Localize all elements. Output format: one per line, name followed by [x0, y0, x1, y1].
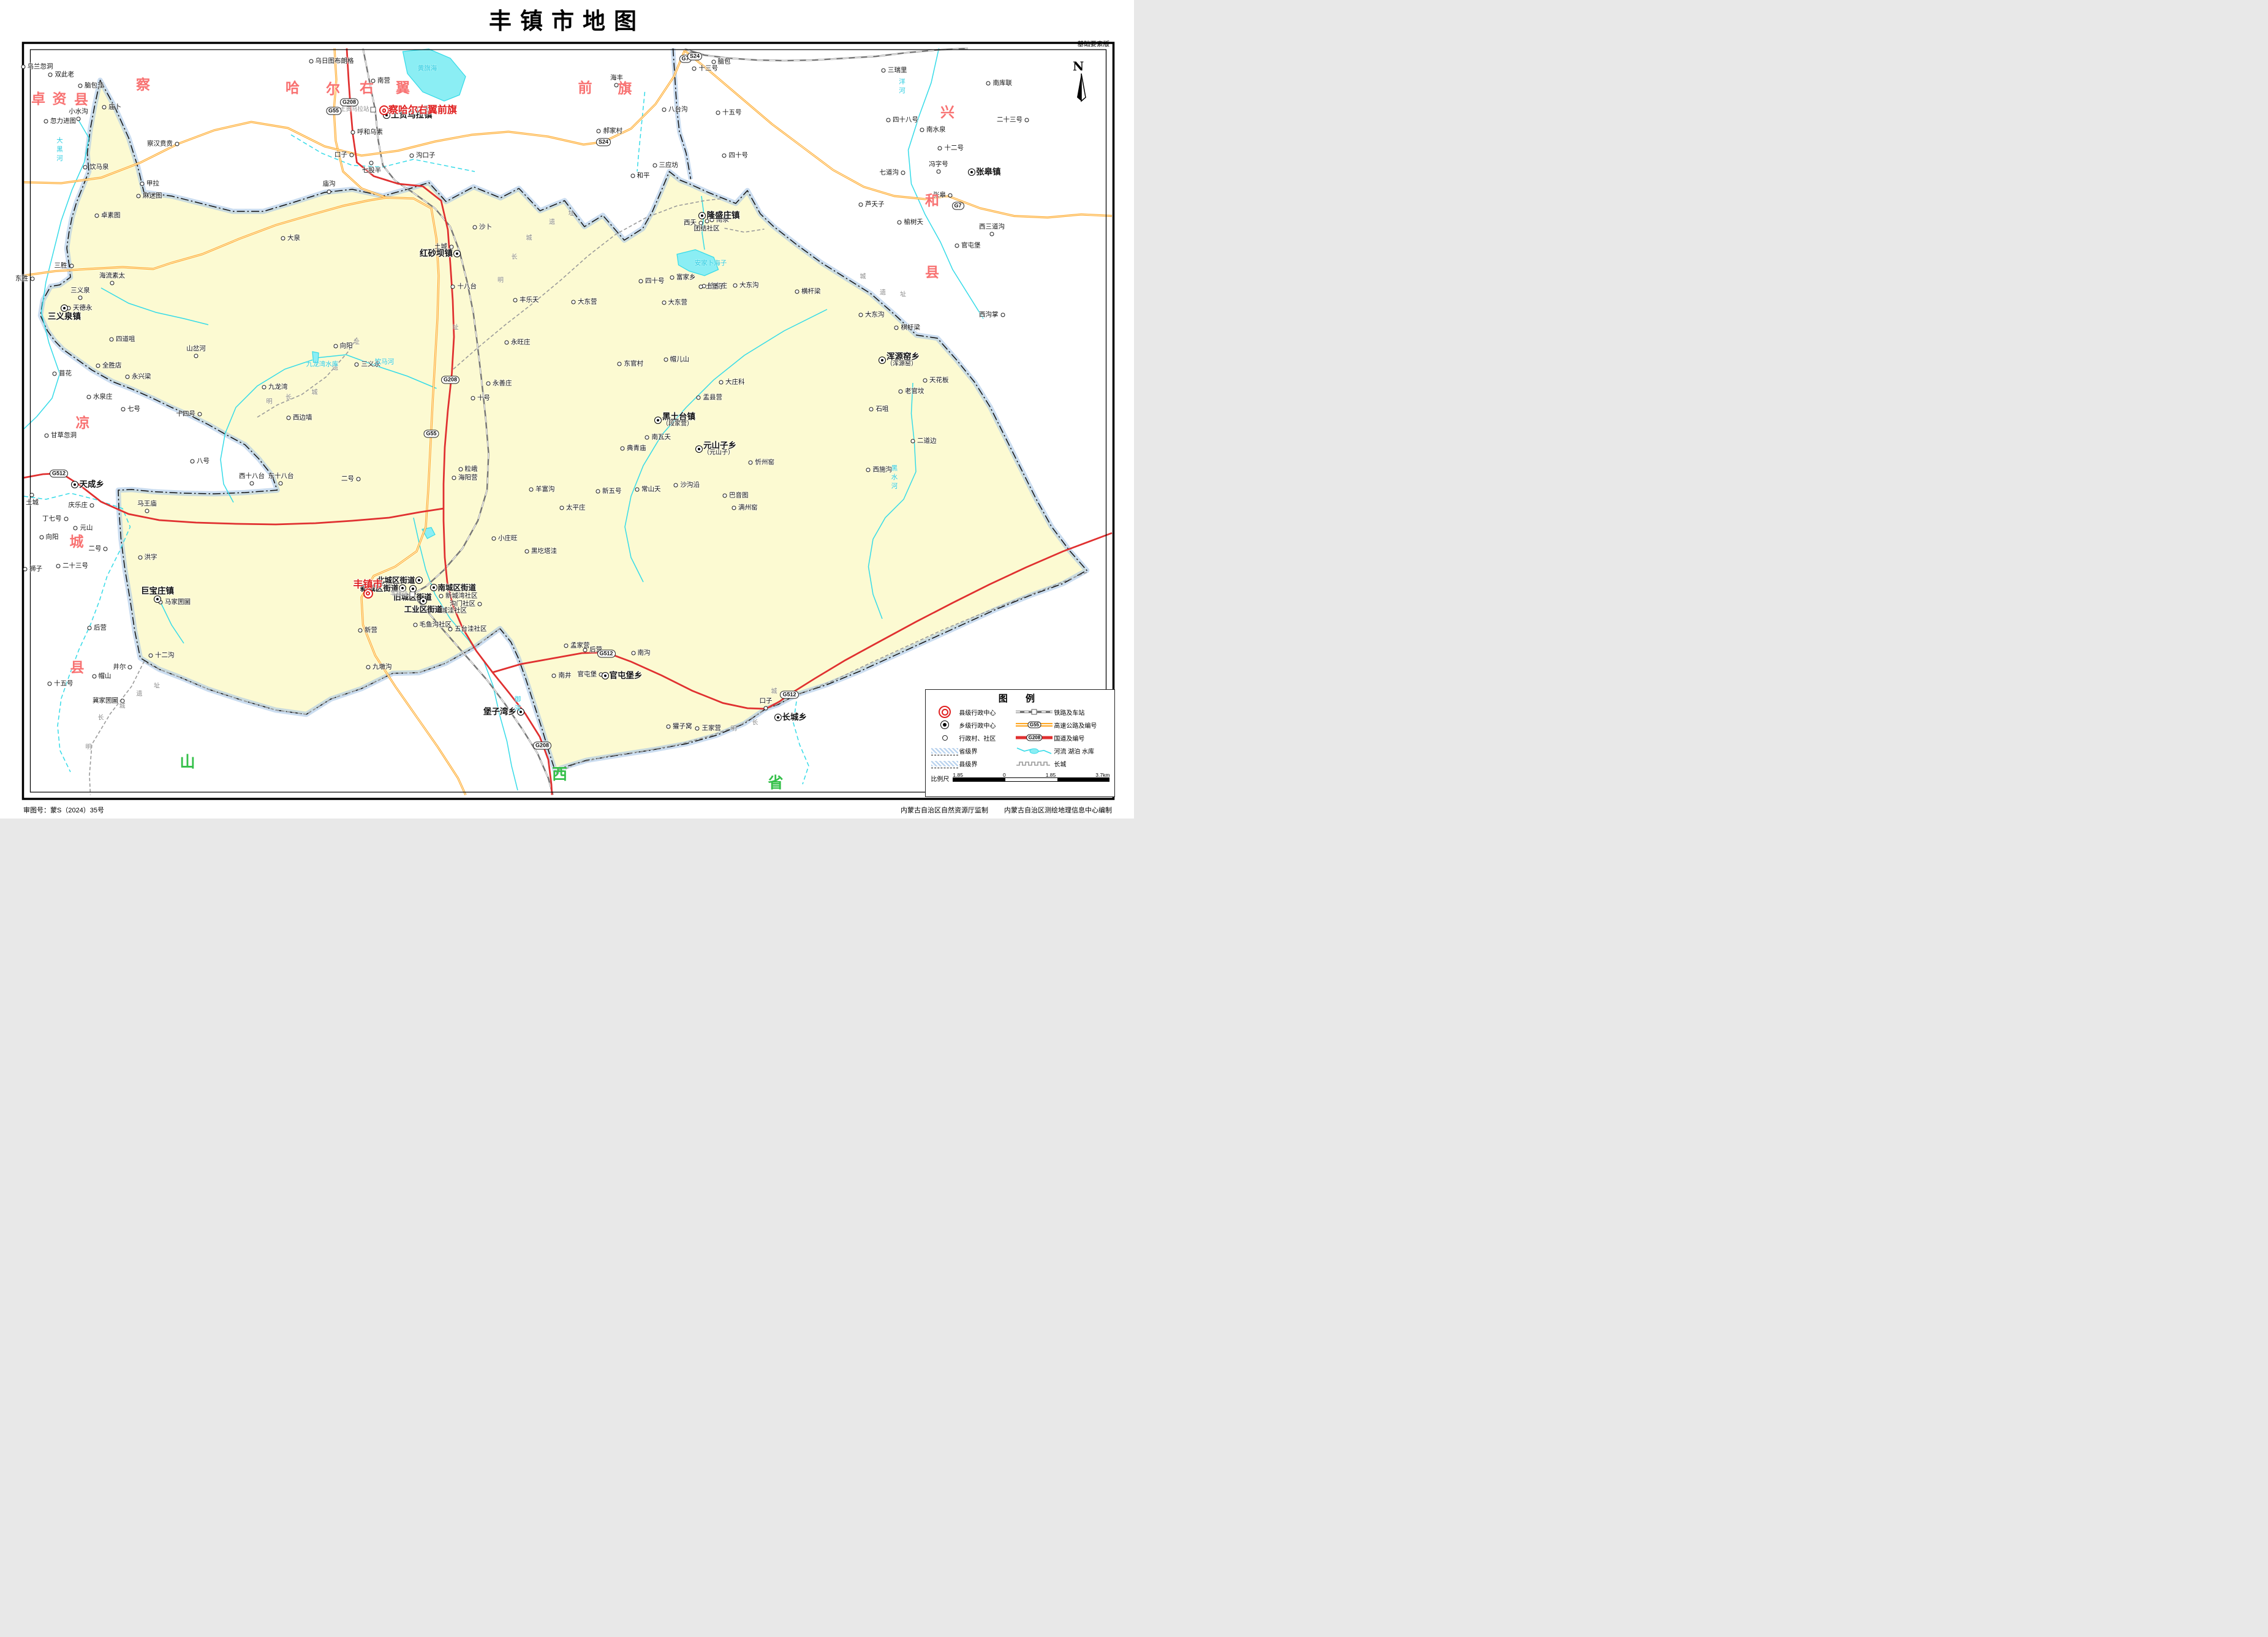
great-wall-label-char: 明: [497, 275, 504, 284]
county-seat-label-text: 丰镇市: [353, 580, 382, 590]
neighbor-region-char: 和: [925, 189, 939, 210]
village-label-marker: [639, 279, 643, 283]
road-badge: S24: [687, 52, 702, 60]
village-label-text: 三瑞里: [888, 67, 907, 74]
neighbor-region-char: 资: [52, 87, 66, 108]
village-label-marker: [513, 298, 518, 303]
great-wall-label-char: 城: [860, 271, 866, 281]
great-wall-label-char: 址: [452, 322, 458, 331]
street-office-label-text: 工业区街道: [404, 605, 443, 613]
credits: 内蒙古自治区自然资源厅监制 内蒙古自治区测绘地理信息中心编制: [901, 805, 1112, 815]
town-label-text: 堡子湾乡: [483, 707, 516, 716]
village-label-text: 典青庙: [627, 445, 646, 452]
village-label-text: 永善庄: [493, 380, 512, 387]
village-label-text: 小水沟: [69, 108, 88, 115]
village-label-marker: [662, 107, 667, 112]
village-label-text: 十二号: [944, 145, 964, 152]
village-label-text: 双此老: [55, 72, 74, 78]
great-wall-label-char: 遗: [880, 287, 886, 297]
village-label-marker: [140, 181, 145, 186]
village-label-text: 郝家村: [603, 127, 622, 134]
village-label-text: 向阳: [340, 342, 353, 349]
village-label-marker: [1000, 312, 1005, 317]
road-badge: G7: [951, 202, 964, 210]
village-label-marker: [989, 232, 994, 236]
village-label-text: 二道边: [917, 437, 937, 444]
village-label-text: 盂县营: [703, 394, 722, 401]
village-label-marker: [571, 300, 575, 304]
great-wall-label-char: 址: [154, 681, 160, 690]
village-label-text: 冯字号: [929, 161, 948, 168]
town-seat-icon: [940, 720, 949, 729]
village-label-text: 口子: [335, 151, 347, 158]
village-label-text: 羊富沟: [535, 486, 555, 493]
village-label-marker: [448, 627, 452, 631]
water-label: 安家卜海子: [695, 259, 727, 268]
village-label-marker: [920, 127, 924, 132]
village-label-marker: [355, 363, 359, 367]
village-label-marker: [722, 494, 727, 498]
village-label-marker: [938, 146, 942, 151]
village-label-text: 四十号: [728, 152, 748, 159]
village-label-text: 小庄旺: [498, 535, 518, 542]
neighbor-region-char: 县: [925, 260, 939, 281]
village-label-marker: [948, 193, 953, 197]
village-label-text: 永旺庄: [511, 339, 531, 346]
village-label-marker: [583, 648, 588, 652]
village-label-text: 石咀: [875, 406, 888, 413]
village-label-marker: [44, 119, 48, 123]
village-label-marker: [138, 556, 142, 560]
village-label-text: 粒峨: [465, 466, 478, 472]
neighbor-region-char: 县: [70, 656, 84, 676]
village-label-text: 四道咀: [116, 336, 135, 342]
village-label-marker: [92, 675, 96, 679]
village-label-marker: [47, 682, 51, 686]
village-label-marker: [76, 117, 80, 121]
neighbor-region-char: 哈: [285, 76, 300, 97]
village-label-marker: [366, 665, 371, 670]
village-label-marker: [486, 381, 491, 385]
village-label-marker: [630, 174, 635, 178]
village-label-marker: [197, 412, 202, 417]
village-label-text: 巴音图: [729, 493, 749, 499]
village-label-text: 帽儿山: [670, 356, 690, 363]
great-wall-label-char: 城: [526, 233, 532, 242]
village-label-text: 庙沟: [322, 181, 335, 187]
village-label-text: 十四号: [176, 410, 195, 417]
village-label-marker: [88, 626, 92, 630]
village-label-marker: [472, 225, 477, 229]
town-label-marker: [602, 672, 609, 679]
village-label-text: 大东营: [578, 298, 597, 305]
village-label-text: 东官村: [624, 360, 643, 367]
village-label-text: 马家圐圙: [165, 599, 191, 605]
road-badge: G55: [423, 429, 439, 437]
county-seat-icon: [939, 706, 951, 718]
village-label-marker: [674, 483, 678, 487]
village-label-text: 南瓦夭: [651, 434, 671, 440]
village-label-text: 毛鱼沟社区: [420, 621, 452, 628]
compass: N: [1073, 59, 1084, 74]
village-label-marker: [309, 59, 313, 64]
village-label-text: 井尔: [113, 663, 126, 670]
village-label-text: 卓素图: [101, 212, 121, 219]
village-label-text: 天德永: [73, 304, 93, 311]
village-label-marker: [413, 622, 417, 627]
neighbor-region-char: 城: [69, 530, 83, 551]
water-label: 洋河: [898, 78, 907, 96]
legend-row: 乡级行政中心 G55 高速公路及编号: [931, 719, 1109, 732]
village-label-text: 二号: [341, 475, 354, 482]
village-label-marker: [175, 142, 179, 146]
town-label-text: 三义泉镇: [48, 312, 81, 321]
village-label-text: 獾子窝: [673, 723, 692, 730]
village-label-text: 三胜: [55, 262, 67, 269]
great-wall-label-char: 明: [266, 396, 273, 405]
village-label-marker: [458, 467, 463, 471]
station-label-text: 土贵乌拉站: [340, 107, 369, 113]
village-label-marker: [631, 651, 635, 655]
village-label-text: 丰乐夭: [520, 297, 539, 303]
village-label-marker: [560, 506, 564, 510]
water-label: 大黑河: [55, 137, 64, 164]
station-label-marker: [409, 592, 415, 597]
village-label-text: 满州窑: [738, 504, 758, 511]
village-label-marker: [882, 69, 886, 73]
water-label: 黑水河: [890, 464, 899, 491]
village-label-marker: [30, 277, 34, 281]
province-name-char: 省: [768, 771, 783, 793]
village-label-text: 沟口子: [416, 152, 436, 159]
great-wall-label-char: 长: [752, 717, 758, 727]
town-label-text: 黑土台镇（段家营）: [662, 412, 695, 428]
village-label-text: 狮子: [29, 565, 42, 572]
station-label-text: 丰镇站: [390, 591, 408, 597]
village-label-text: 饮马泉: [89, 164, 109, 170]
village-label-text: 新五号: [602, 488, 622, 495]
village-label-marker: [733, 283, 738, 287]
town-label-text: 官屯堡乡: [610, 671, 643, 680]
producer-credit: 内蒙古自治区测绘地理信息中心编制: [1004, 805, 1112, 815]
village-label-text: 庙卜: [108, 104, 121, 110]
neighbor-region-char: 县: [74, 88, 88, 108]
village-label-marker: [869, 407, 874, 412]
village-label-marker: [477, 602, 482, 606]
water-label: 黄旗海: [418, 63, 437, 72]
town-label-marker: [654, 417, 662, 424]
village-label-marker: [1025, 118, 1029, 123]
village-label-text: 新城湾社区: [445, 592, 478, 599]
village-label-text: 二号: [88, 545, 101, 552]
village-label-text: 口子: [759, 698, 772, 705]
village-label-text: 南沟: [638, 649, 651, 656]
village-label-text: 大泉: [287, 235, 300, 241]
water-label: 九龙湾水库: [306, 359, 339, 368]
village-label-marker: [471, 396, 475, 401]
village-label-marker: [719, 380, 723, 385]
road-badge: G208: [340, 98, 358, 106]
village-label-text: 八号: [197, 458, 210, 464]
road-badge: G512: [780, 690, 798, 698]
village-label-text: 十八台: [457, 283, 477, 290]
village-label-text: 官屯堡: [961, 242, 981, 249]
legend-row: 县级行政中心 铁路及车站: [931, 706, 1109, 719]
village-label-text: 沙沟沿: [680, 482, 700, 488]
village-label-text: 四十八号: [893, 117, 918, 124]
street-office-label-marker: [420, 597, 427, 605]
village-label-text: 三应坊: [659, 162, 679, 168]
village-label-marker: [357, 477, 361, 481]
village-label-marker: [886, 118, 890, 123]
village-label-text: 海阳营: [458, 474, 478, 481]
village-label-marker: [369, 161, 374, 165]
village-label-text: 洪字: [145, 554, 157, 561]
village-label-text: 十三号: [698, 65, 718, 72]
national-road-icon: G208: [1015, 734, 1054, 741]
village-label-text: 七道沟: [880, 170, 899, 176]
village-label-marker: [923, 378, 928, 382]
water-label: 饮马河: [375, 357, 395, 366]
village-label-marker: [95, 213, 99, 217]
village-label-marker: [69, 263, 74, 268]
village-label-marker: [936, 169, 940, 173]
village-label-marker: [110, 337, 114, 341]
village-label-text: 大庄科: [725, 379, 745, 385]
town-label-marker: [774, 714, 782, 721]
village-label-text: 东十八台: [268, 473, 293, 480]
village-label-text: 八台沟: [668, 106, 688, 113]
neighbor-region-char: 凉: [75, 411, 89, 432]
village-label-text: 察汉贲贲: [147, 141, 173, 148]
village-label-marker: [662, 300, 666, 304]
county-seat-label-marker: [363, 589, 373, 599]
great-wall-label-char: 址: [568, 208, 574, 217]
town-label-text: 元山子乡（元山子）: [703, 441, 736, 456]
town-label-text: 张皋镇: [976, 168, 1001, 176]
village-label-marker: [262, 385, 266, 389]
town-label-marker: [453, 250, 461, 257]
village-label-marker: [249, 482, 254, 486]
town-label-marker: [695, 445, 703, 453]
village-label-marker: [52, 372, 56, 376]
village-label-text: 老官坟: [905, 388, 924, 395]
village-label-marker: [451, 284, 455, 289]
village-label-text: 东胜: [15, 275, 28, 282]
compass-n-label: N: [1073, 59, 1084, 74]
village-label-marker: [711, 60, 716, 64]
street-office-label-marker: [430, 584, 437, 591]
village-label-text: 西边墙: [293, 415, 312, 422]
neighbor-region-char: 右: [360, 76, 374, 97]
village-label-text: 芦夭子: [865, 201, 885, 208]
village-label-text: 七股半: [362, 167, 382, 174]
village-label-text: 苜花: [59, 370, 72, 377]
village-label-text: 榆树夭: [904, 219, 923, 226]
village-label-marker: [695, 726, 700, 730]
village-label-text: 官屯堡: [577, 671, 597, 678]
road-badge: G512: [597, 649, 615, 657]
village-label-marker: [732, 506, 736, 510]
scale-bar: 比例尺 1.85 0 1.85 3.7km: [931, 772, 1109, 783]
village-label-marker: [859, 312, 863, 317]
town-label-text: 浑源窑乡（浑源窑）: [886, 353, 920, 368]
water-icon: [1015, 746, 1054, 755]
village-label-text: 十二沟: [155, 652, 175, 659]
neighbor-region-char: 翼: [396, 76, 410, 97]
village-label-marker: [866, 467, 871, 472]
village-label-text: 四十号: [645, 278, 665, 284]
village-label-marker: [524, 549, 529, 553]
map-sheet: 丰镇市地图 基础要素版: [0, 0, 1134, 818]
county-border-icon: [931, 761, 958, 766]
great-wall-label-char: 明: [86, 742, 92, 751]
neighbor-region-char: 卓: [31, 87, 45, 108]
village-label-text: 大东沟: [739, 282, 759, 289]
village-label-marker: [87, 395, 91, 399]
village-label-text: 天花板: [929, 377, 949, 384]
village-label-text: 土堡子: [705, 283, 725, 290]
village-label-marker: [564, 643, 569, 648]
village-label-marker: [666, 724, 670, 728]
village-label-marker: [910, 439, 915, 443]
village-label-text: 忽力进图: [50, 118, 76, 124]
village-label-text: 海流素太: [99, 273, 125, 279]
village-label-marker: [439, 594, 444, 598]
village-label-text: 南营: [377, 77, 390, 84]
village-label-marker: [78, 295, 82, 300]
village-label-text: 丁七号: [42, 515, 62, 522]
village-label-text: 孟家营: [570, 642, 590, 649]
village-icon: [942, 735, 948, 741]
village-label-text: 西沟掌: [979, 311, 999, 318]
village-label-marker: [287, 416, 291, 420]
town-label-marker: [71, 481, 78, 488]
neighbor-region-char: 兴: [940, 100, 954, 121]
great-wall-label-char: 长: [285, 391, 292, 401]
village-label-text: 沙卜: [479, 224, 492, 230]
neighbor-region-char: 前: [578, 76, 592, 97]
village-label-text: 庆乐庄: [69, 502, 88, 508]
village-label-marker: [618, 361, 622, 366]
village-label-text: 西施沟: [872, 466, 892, 473]
town-label-marker: [61, 304, 68, 312]
village-label-text: 十五号: [54, 680, 74, 687]
water-label: 御河: [513, 696, 523, 714]
village-label-marker: [56, 564, 60, 569]
village-label-marker: [491, 536, 496, 540]
village-label-text: 乌日图布朗格: [316, 58, 354, 65]
town-label-text: 天成乡: [79, 480, 104, 489]
road-badge: G55: [326, 107, 341, 115]
town-label-marker: [968, 168, 975, 176]
province-name-char: 山: [180, 750, 195, 772]
village-label-text: 水泉庄: [93, 393, 113, 400]
village-label-text: 南库联: [992, 80, 1012, 87]
neighbor-region-char: 察: [136, 73, 150, 94]
village-label-marker: [104, 547, 108, 551]
village-label-marker: [699, 285, 703, 289]
village-label-marker: [692, 66, 697, 70]
village-label-marker: [452, 475, 456, 480]
village-label-marker: [749, 460, 753, 464]
village-label-text: 全胜店: [102, 363, 122, 369]
village-label-marker: [697, 396, 701, 400]
village-label-text: 二十三号: [62, 562, 88, 569]
village-label-marker: [645, 435, 649, 439]
province-name-char: 西: [552, 762, 567, 784]
village-label-text: 三义泉: [70, 287, 90, 294]
village-label-text: 九墩沟: [372, 663, 392, 670]
town-label-marker: [879, 357, 886, 364]
village-label-marker: [358, 628, 363, 632]
village-label-marker: [327, 189, 331, 194]
village-label-text: 麻迷图: [143, 192, 162, 199]
village-label-marker: [410, 154, 414, 158]
village-label-text: 横杆梁: [801, 288, 821, 295]
railway-icon: [1015, 708, 1054, 716]
village-label-marker: [281, 236, 285, 241]
village-label-marker: [64, 516, 68, 521]
village-label-text: 棋杆梁: [901, 324, 920, 331]
village-label-marker: [83, 165, 87, 169]
village-label-marker: [620, 446, 624, 450]
village-label-marker: [597, 129, 601, 134]
village-label-text: 王家营: [701, 725, 721, 732]
road-badge: G208: [441, 376, 459, 384]
legend: 图 例 县级行政中心 铁路及车站 乡级行政中心 G55 高速公路及编号 行政村、…: [925, 689, 1115, 797]
great-wall-label-char: 城: [119, 701, 126, 710]
great-wall-label-char: 址: [353, 337, 360, 346]
village-label-marker: [125, 375, 129, 379]
village-label-marker: [194, 354, 198, 358]
county-seat-label-text: 察哈尔右翼前旗: [388, 105, 457, 116]
village-label-marker: [552, 674, 556, 678]
village-label-text: 常山夭: [641, 486, 661, 493]
village-label-marker: [901, 171, 905, 175]
great-wall-label-char: 遗: [549, 217, 555, 226]
great-wall-label-char: 址: [900, 289, 906, 298]
village-label-marker: [795, 290, 799, 294]
village-label-text: 西三道沟: [979, 224, 1005, 230]
town-label-text: 隆盛庄镇: [706, 211, 739, 219]
village-label-text: 新营: [365, 627, 377, 633]
great-wall-label-char: 长: [97, 713, 104, 722]
road-badge: S24: [596, 138, 611, 146]
village-label-marker: [21, 65, 25, 69]
village-label-text: 乌兰忽洞: [28, 63, 53, 70]
village-label-text: 西十八台: [239, 473, 265, 480]
village-label-text: 甲拉: [146, 180, 159, 187]
legend-row: 行政村、社区 G208 国道及编号: [931, 732, 1109, 744]
village-label-marker: [279, 482, 283, 486]
village-label-marker: [333, 344, 338, 348]
village-label-marker: [722, 153, 727, 157]
village-label-text: 十五号: [722, 109, 742, 116]
village-label-marker: [90, 503, 94, 507]
county-seat-label-marker: [379, 105, 389, 115]
village-label-marker: [663, 357, 668, 361]
neighbor-region-char: 旗: [618, 77, 632, 97]
village-label-text: 团结社区: [694, 225, 720, 232]
town-label-marker: [154, 595, 161, 603]
town-label-text: 长城乡: [782, 713, 807, 722]
village-label-marker: [894, 326, 899, 330]
village-label-marker: [859, 202, 863, 206]
village-label-marker: [145, 508, 149, 513]
village-label-text: 九龙湾: [268, 384, 288, 390]
village-label-text: 五台洼社区: [455, 626, 487, 632]
